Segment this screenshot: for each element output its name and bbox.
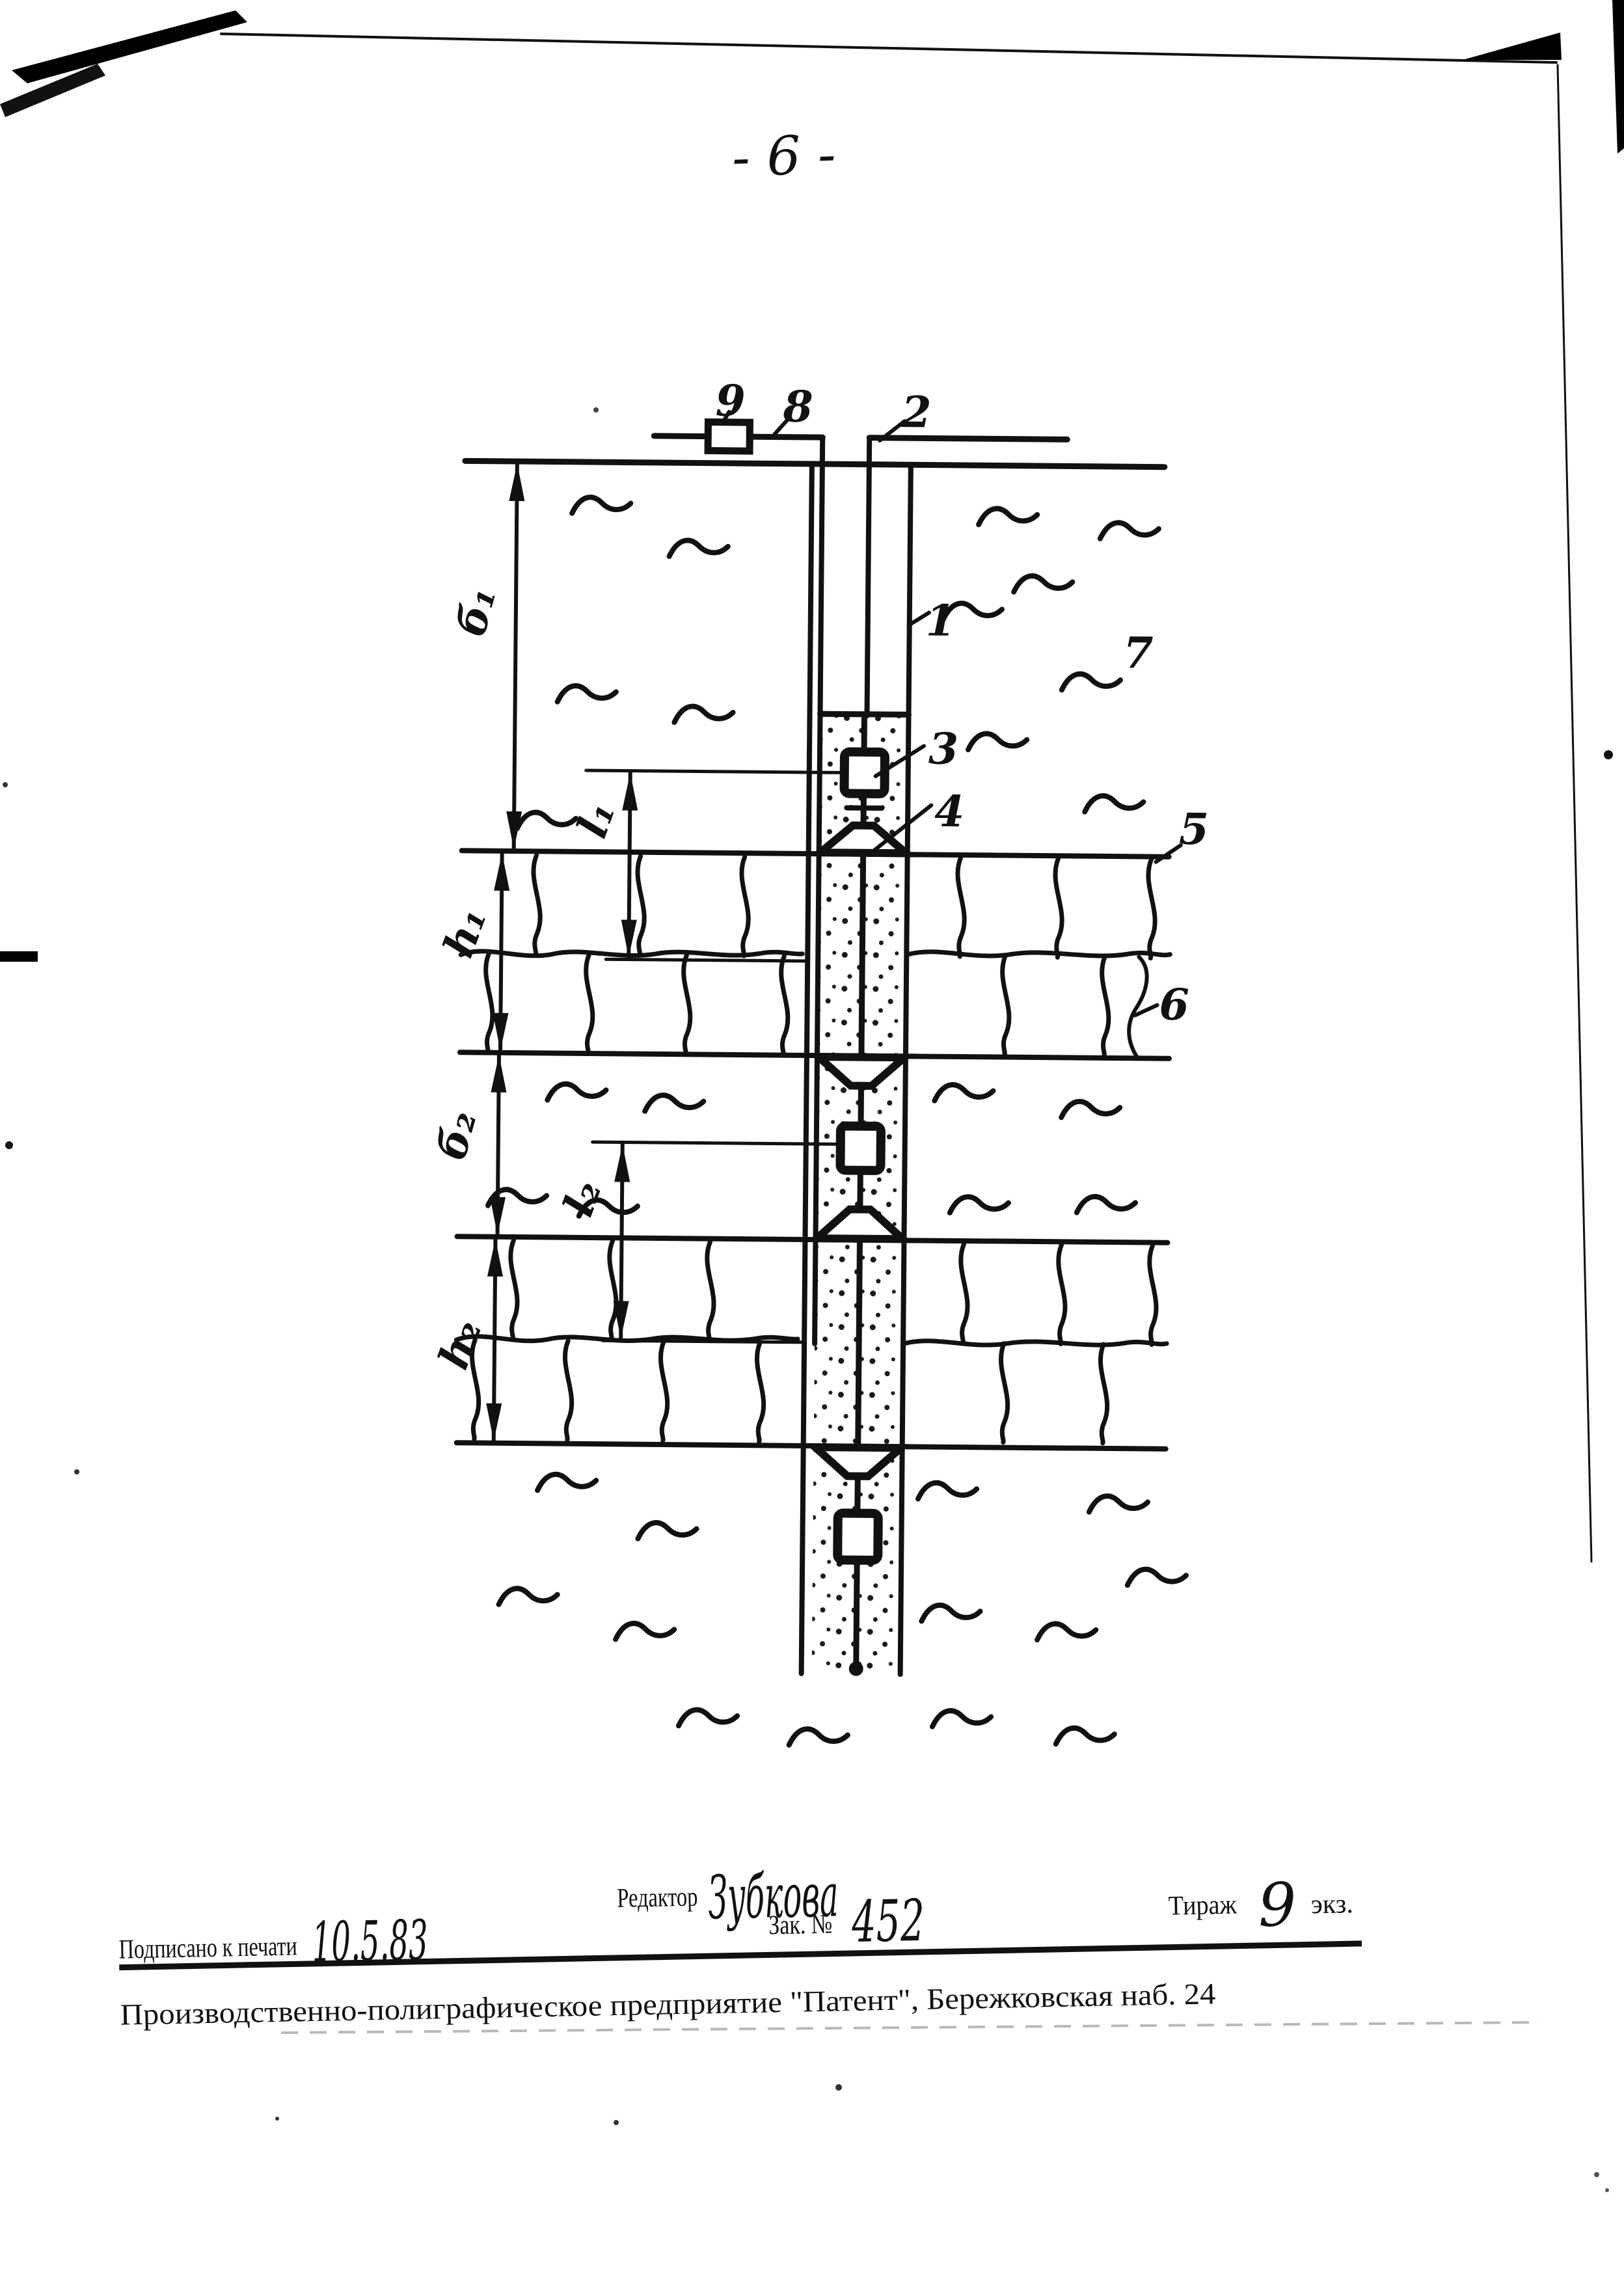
callout-4: 4	[934, 786, 965, 837]
imprint-print-run-unit: экз.	[1310, 1889, 1353, 1920]
imprint-order-number: 452	[850, 1887, 925, 1955]
imprint: Подписано к печати 10.5.83 Редактор Зубк…	[118, 1851, 1363, 2031]
imprint-publisher-line: Производственно-полиграфическое предприя…	[120, 1977, 1216, 2031]
dim-l2-ref-top	[593, 1142, 840, 1144]
wellhead-valve-box	[708, 422, 750, 452]
dim-b1-label: б₁	[446, 582, 506, 642]
callout-8: 8	[782, 381, 813, 432]
top-right-edge-mark	[1463, 33, 1562, 60]
imprint-editor-label: Редактор	[617, 1882, 698, 1914]
page-canvas: - 6 -	[0, 0, 1624, 2280]
page-number: - 6 -	[731, 124, 837, 189]
speck-4	[275, 2117, 279, 2121]
imprint-rule	[119, 1944, 1362, 1968]
ink-blob	[1604, 750, 1613, 759]
dim-b2-label: б₂	[427, 1106, 487, 1165]
stem-4	[861, 1086, 861, 1126]
page-top-edge	[221, 34, 1556, 62]
dim-l2-label: l₂	[554, 1174, 612, 1223]
callout-1: 1	[925, 595, 956, 646]
page-right-edge	[1558, 65, 1591, 1562]
callout-7: 7	[1123, 627, 1154, 678]
imprint-print-run-label: Тираж	[1168, 1890, 1238, 1921]
left-margin-dot-1	[5, 1141, 13, 1149]
dim-l1-label: l₁	[568, 795, 626, 844]
imprint-signed-label: Подписано к печати	[118, 1931, 297, 1964]
borehole-wall-left	[802, 464, 812, 1674]
surface-pipe-right	[869, 438, 1067, 440]
imprint-print-run-value: 9	[1258, 1870, 1297, 1940]
left-margin-dot-2	[3, 782, 8, 787]
callout-3: 3	[928, 724, 959, 774]
dim-l1-ref-top	[586, 770, 843, 772]
callout-2: 2	[900, 387, 932, 437]
dim-b1-line	[514, 463, 517, 849]
imprint-order-label: Зак. №	[768, 1910, 833, 1941]
right-edge-bar	[1612, 0, 1624, 154]
speck-5	[1594, 2172, 1599, 2177]
dim-h2-label: h₂	[429, 1313, 492, 1376]
speck-3	[614, 2120, 619, 2125]
dim-l2-ref-bottom	[602, 1340, 804, 1342]
tubing-wall-right	[867, 438, 870, 714]
left-margin-dot-3	[74, 1469, 79, 1474]
stem-3	[861, 853, 863, 1057]
scanned-patent-page: - 6 -	[0, 0, 1624, 2280]
callout-6-leader	[1129, 957, 1147, 1058]
stem-6	[858, 1239, 860, 1448]
ground-surface-line	[465, 461, 1165, 467]
downhole-unit-box-2	[840, 1126, 881, 1171]
speck-1	[593, 407, 599, 413]
stem-end-tip	[849, 1662, 863, 1676]
callout-6: 6	[1159, 979, 1189, 1030]
productive-layer-pattern	[455, 853, 1171, 1445]
callout-5: 5	[1179, 804, 1210, 854]
speck-2	[835, 2084, 842, 2091]
left-margin-dash	[0, 951, 38, 962]
stem-5	[860, 1171, 861, 1210]
stem-1	[864, 714, 865, 753]
callout-5-leader	[1156, 845, 1181, 862]
speck-6	[1605, 2188, 1609, 2192]
stem-8	[856, 1560, 857, 1666]
dim-l1-ref-bottom	[606, 959, 807, 961]
downhole-unit-box-3	[837, 1513, 878, 1560]
well-diagram: б₁ h₁ l₁ б₂ l₂ h₂ 1 2 3 4 5 6 7 8 9	[422, 373, 1213, 1748]
torn-corner-mark-1	[12, 10, 247, 83]
callout-9: 9	[715, 375, 746, 426]
